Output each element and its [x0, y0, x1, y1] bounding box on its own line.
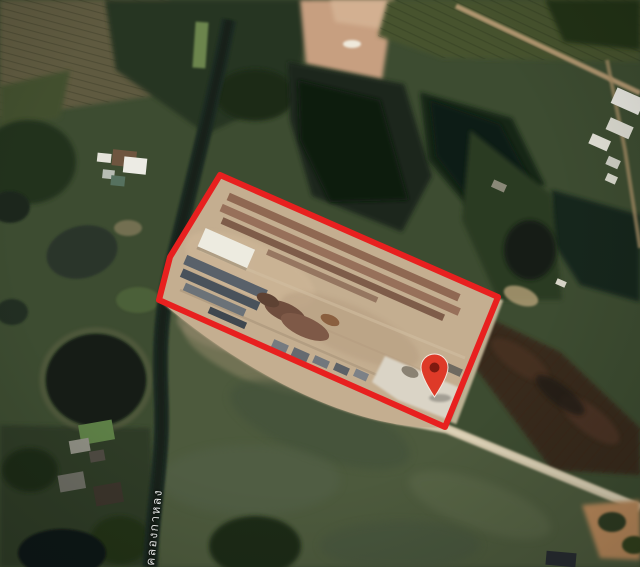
map-viewport[interactable]: คลองกาหลง [0, 0, 640, 567]
pin-hole [430, 363, 440, 373]
satellite-map-canvas[interactable]: คลองกาหลง [0, 0, 640, 567]
pin-shadow [429, 394, 451, 402]
